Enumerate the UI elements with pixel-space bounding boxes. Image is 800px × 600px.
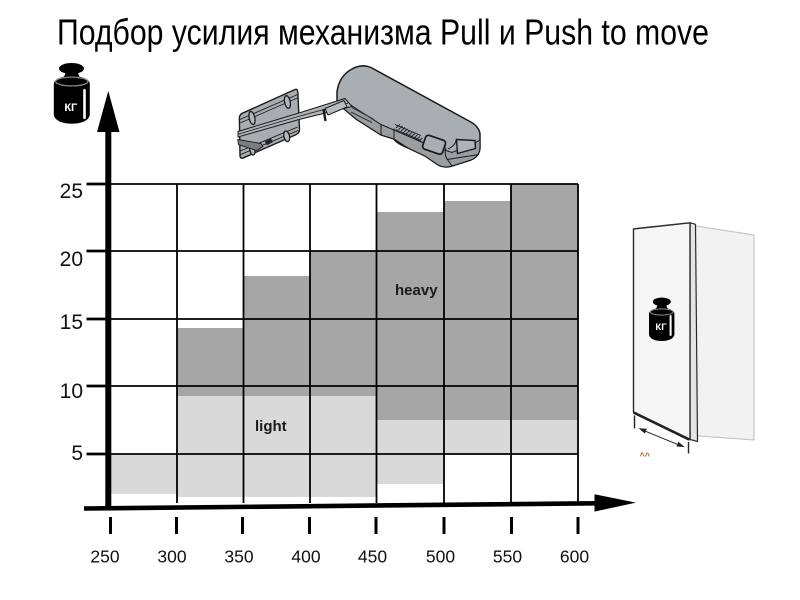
svg-text:400: 400	[291, 547, 320, 567]
svg-text:350: 350	[224, 547, 253, 567]
svg-text:Подбор усилия механизма Pull и: Подбор усилия механизма Pull и Push to m…	[57, 12, 709, 53]
svg-text:20: 20	[60, 248, 83, 271]
svg-text:^^: ^^	[640, 451, 651, 461]
svg-text:300: 300	[157, 547, 186, 567]
svg-text:250: 250	[90, 547, 119, 567]
svg-text:500: 500	[426, 547, 455, 567]
svg-text:КГ: КГ	[64, 102, 78, 114]
svg-text:15: 15	[60, 311, 83, 334]
svg-text:10: 10	[60, 380, 83, 403]
svg-text:550: 550	[493, 547, 522, 567]
svg-text:light: light	[255, 418, 287, 435]
svg-text:25: 25	[60, 180, 83, 203]
svg-text:5: 5	[71, 442, 83, 465]
svg-text:КГ: КГ	[655, 322, 667, 333]
svg-text:600: 600	[560, 547, 589, 567]
svg-text:450: 450	[358, 547, 387, 567]
svg-text:heavy: heavy	[395, 282, 438, 299]
